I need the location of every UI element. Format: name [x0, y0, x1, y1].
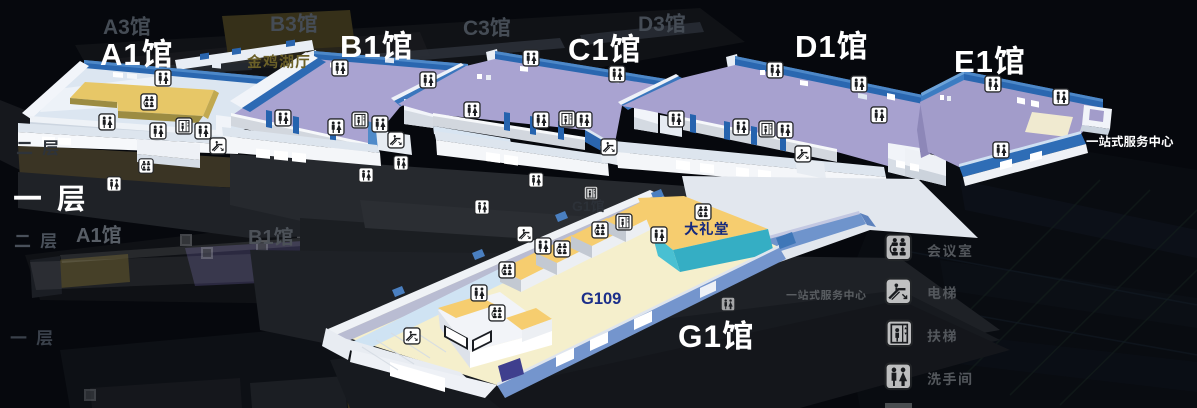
svg-text:G1: G1 — [678, 318, 722, 354]
svg-text:B1: B1 — [340, 29, 382, 64]
svg-text:B1: B1 — [248, 227, 274, 249]
svg-text:A1: A1 — [76, 225, 102, 247]
svg-text:G109: G109 — [581, 290, 621, 308]
svg-text:C3: C3 — [463, 17, 490, 40]
svg-text:E1: E1 — [954, 44, 994, 79]
svg-text:D3: D3 — [638, 13, 665, 36]
svg-text:B3: B3 — [270, 13, 297, 36]
svg-text:D1: D1 — [795, 29, 837, 64]
svg-text:C1: C1 — [568, 32, 610, 67]
svg-text:A1: A1 — [100, 37, 142, 72]
svg-text:A3: A3 — [103, 16, 130, 39]
